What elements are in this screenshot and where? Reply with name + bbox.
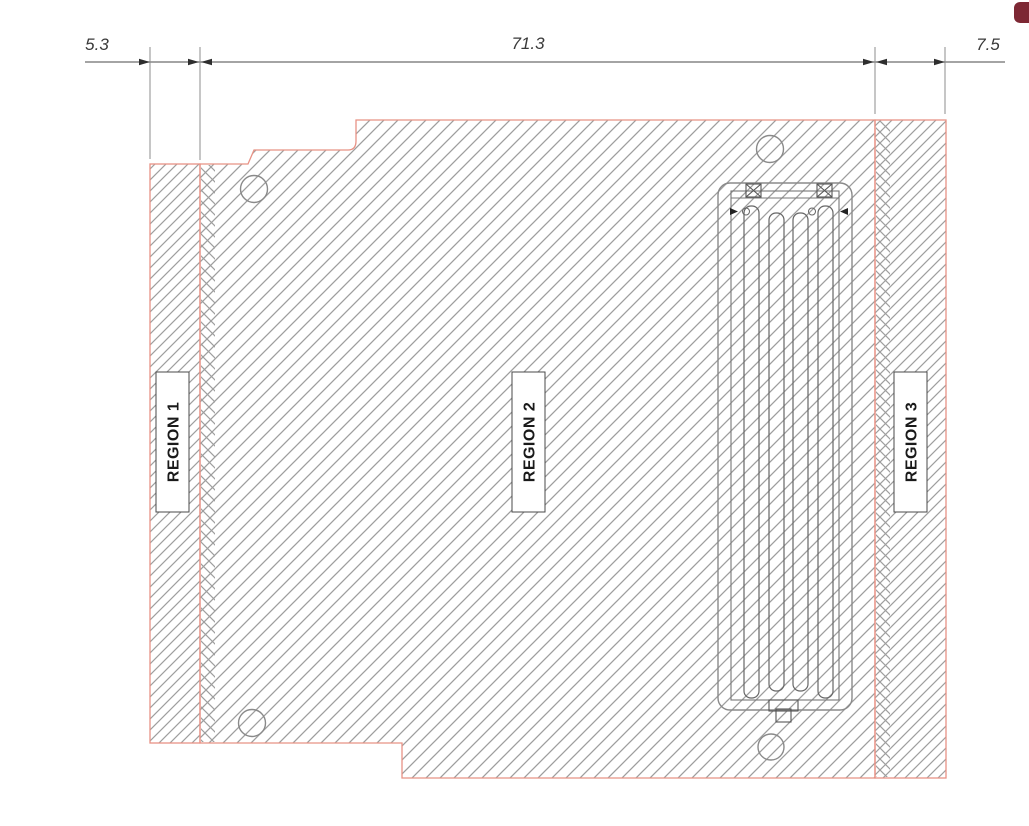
part-section-view [150, 120, 946, 778]
region-label-3: REGION 3 [904, 402, 921, 482]
dim-arrow-icon-6 [934, 59, 945, 65]
dim-arrow-icon-4 [863, 59, 874, 65]
cad-drawing-canvas: 5.3 71.3 7.5 REGION 1 REGION 2 REGION 3 [0, 0, 1029, 826]
dim-arrow-icon-1 [139, 59, 150, 65]
dim-arrow-icon-5 [876, 59, 887, 65]
corner-badge[interactable] [1014, 2, 1029, 23]
hatch-band-left-interface [201, 165, 215, 742]
dim-label-right: 7.5 [976, 35, 1000, 54]
region-label-1: REGION 1 [166, 402, 183, 482]
dim-label-left: 5.3 [85, 35, 109, 54]
dim-arrow-icon-3 [201, 59, 212, 65]
region-label-2: REGION 2 [522, 402, 539, 482]
dim-arrow-icon-2 [188, 59, 199, 65]
hatch-band-right-interface [876, 121, 890, 777]
dim-label-middle: 71.3 [511, 34, 545, 53]
